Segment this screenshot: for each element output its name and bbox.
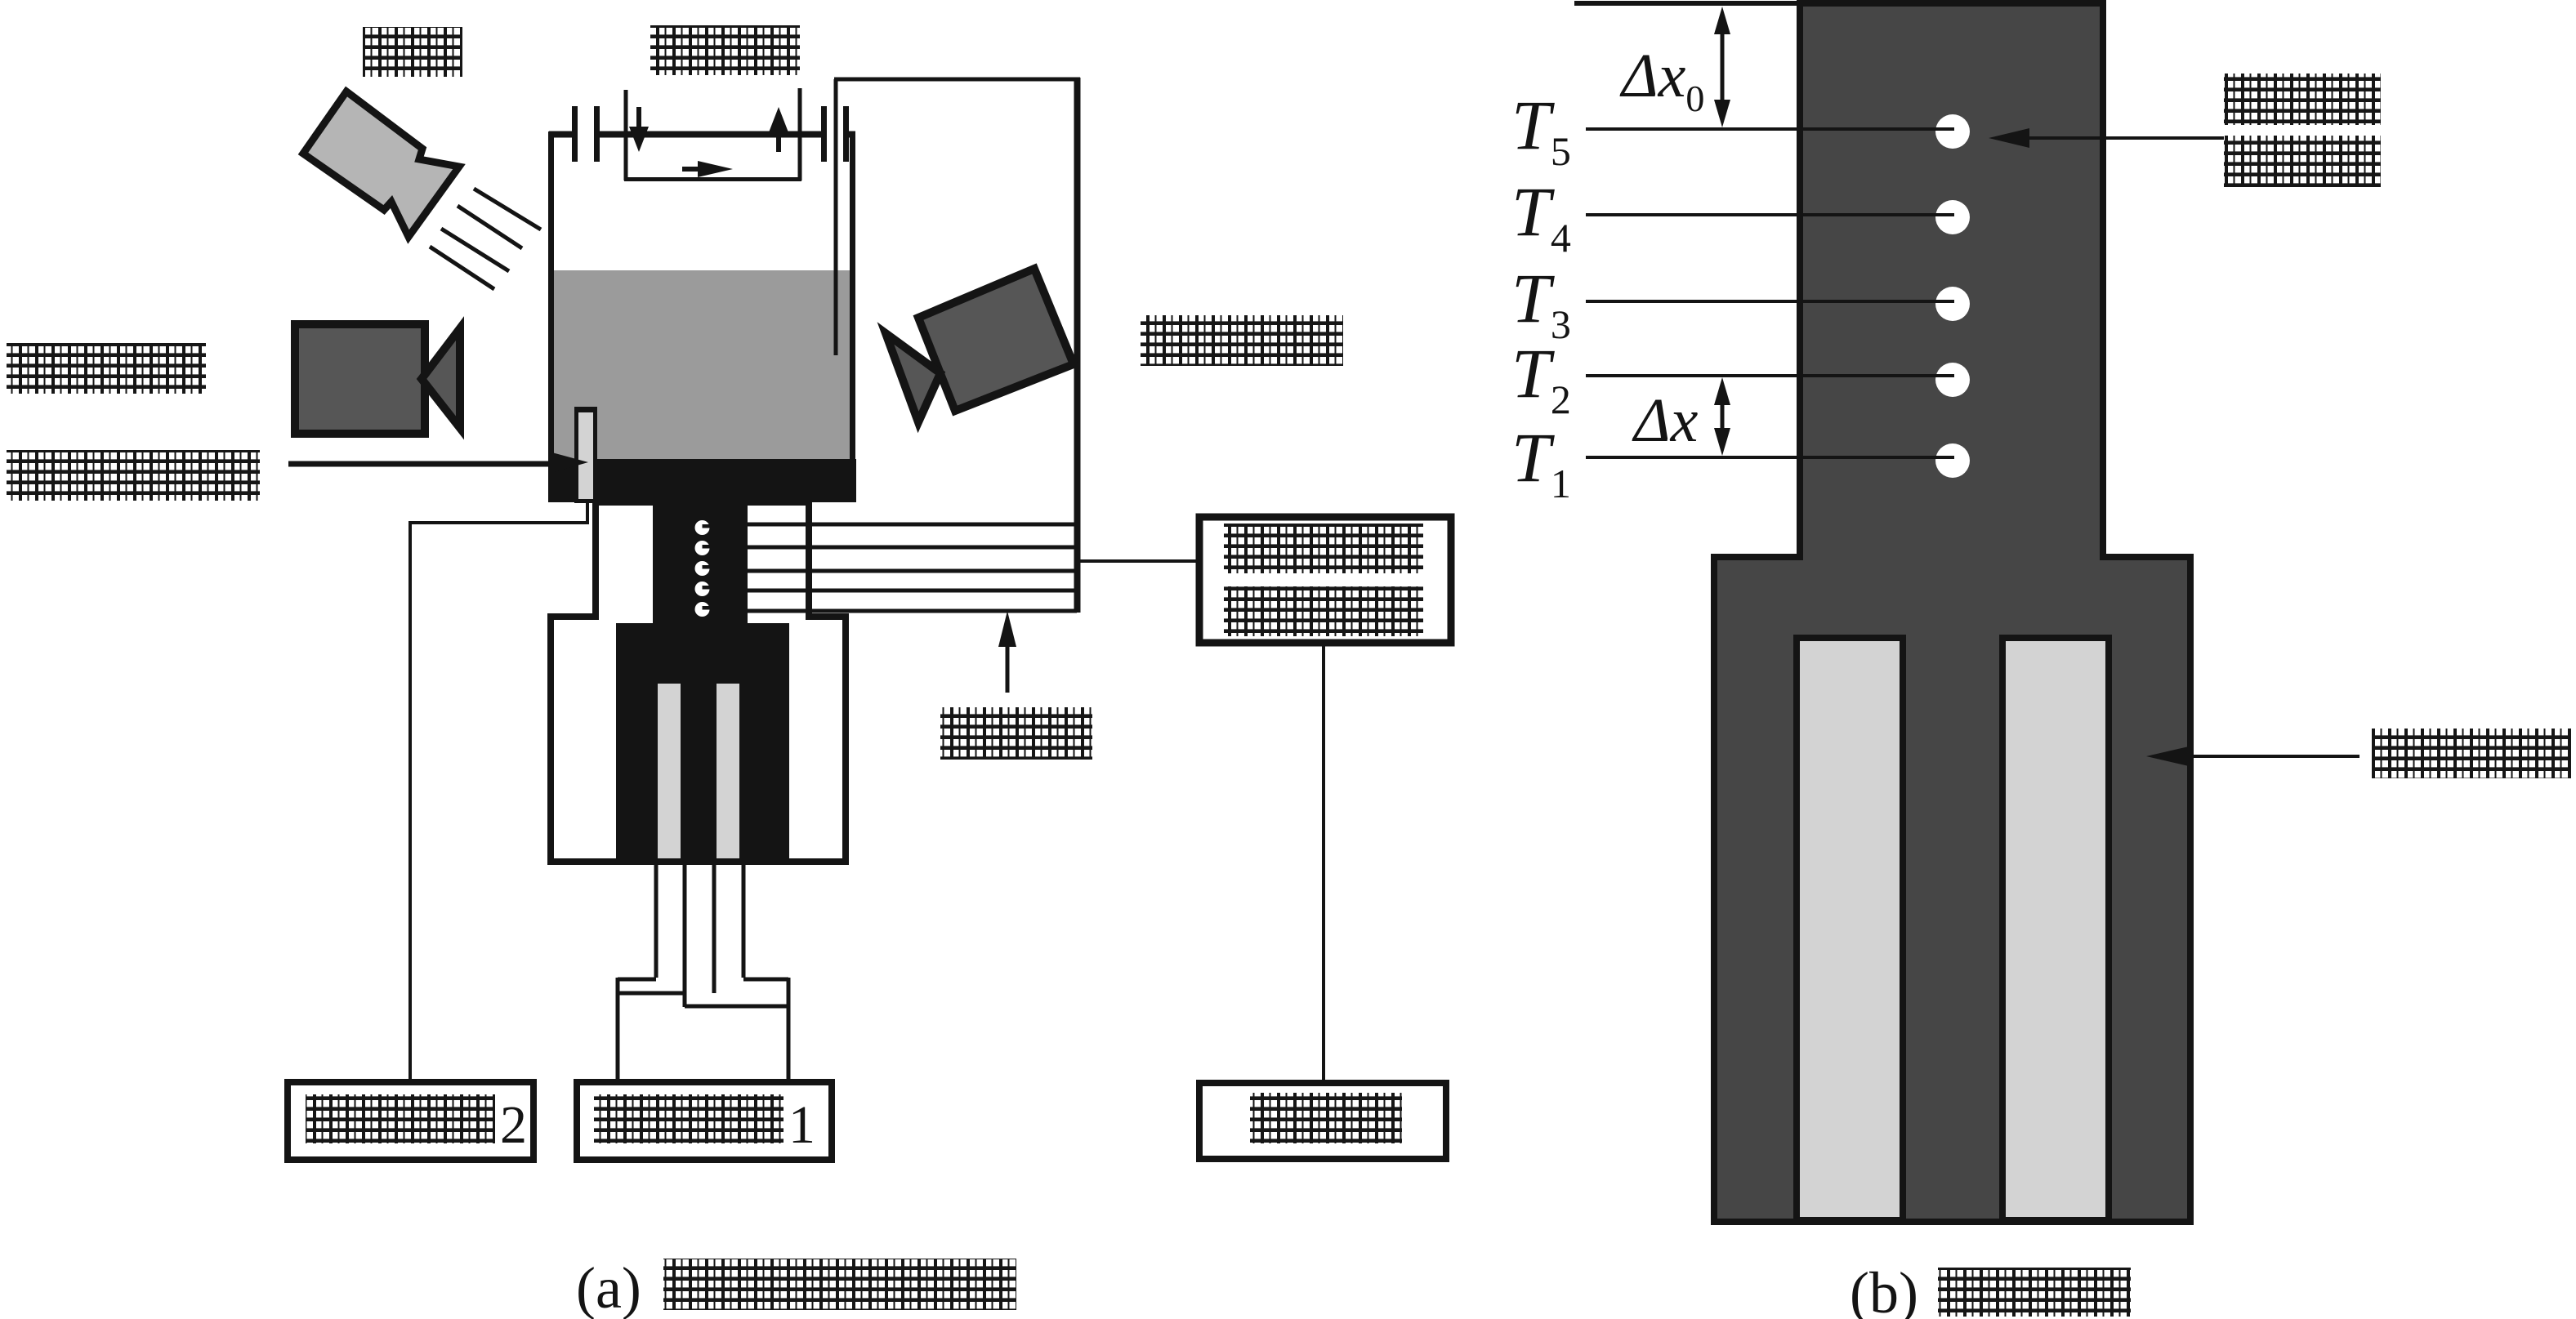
svg-text:Δx: Δx: [1632, 386, 1699, 455]
svg-text:T5: T5: [1511, 86, 1571, 174]
svg-text:(b): (b): [1850, 1260, 1918, 1319]
svg-text:(a): (a): [576, 1255, 641, 1319]
svg-text:T4: T4: [1511, 172, 1571, 261]
svg-text:1: 1: [788, 1095, 815, 1155]
svg-text:T2: T2: [1511, 334, 1571, 422]
svg-text:2: 2: [500, 1095, 527, 1155]
svg-text:Δx0: Δx0: [1619, 42, 1704, 119]
svg-text:T1: T1: [1511, 418, 1571, 506]
